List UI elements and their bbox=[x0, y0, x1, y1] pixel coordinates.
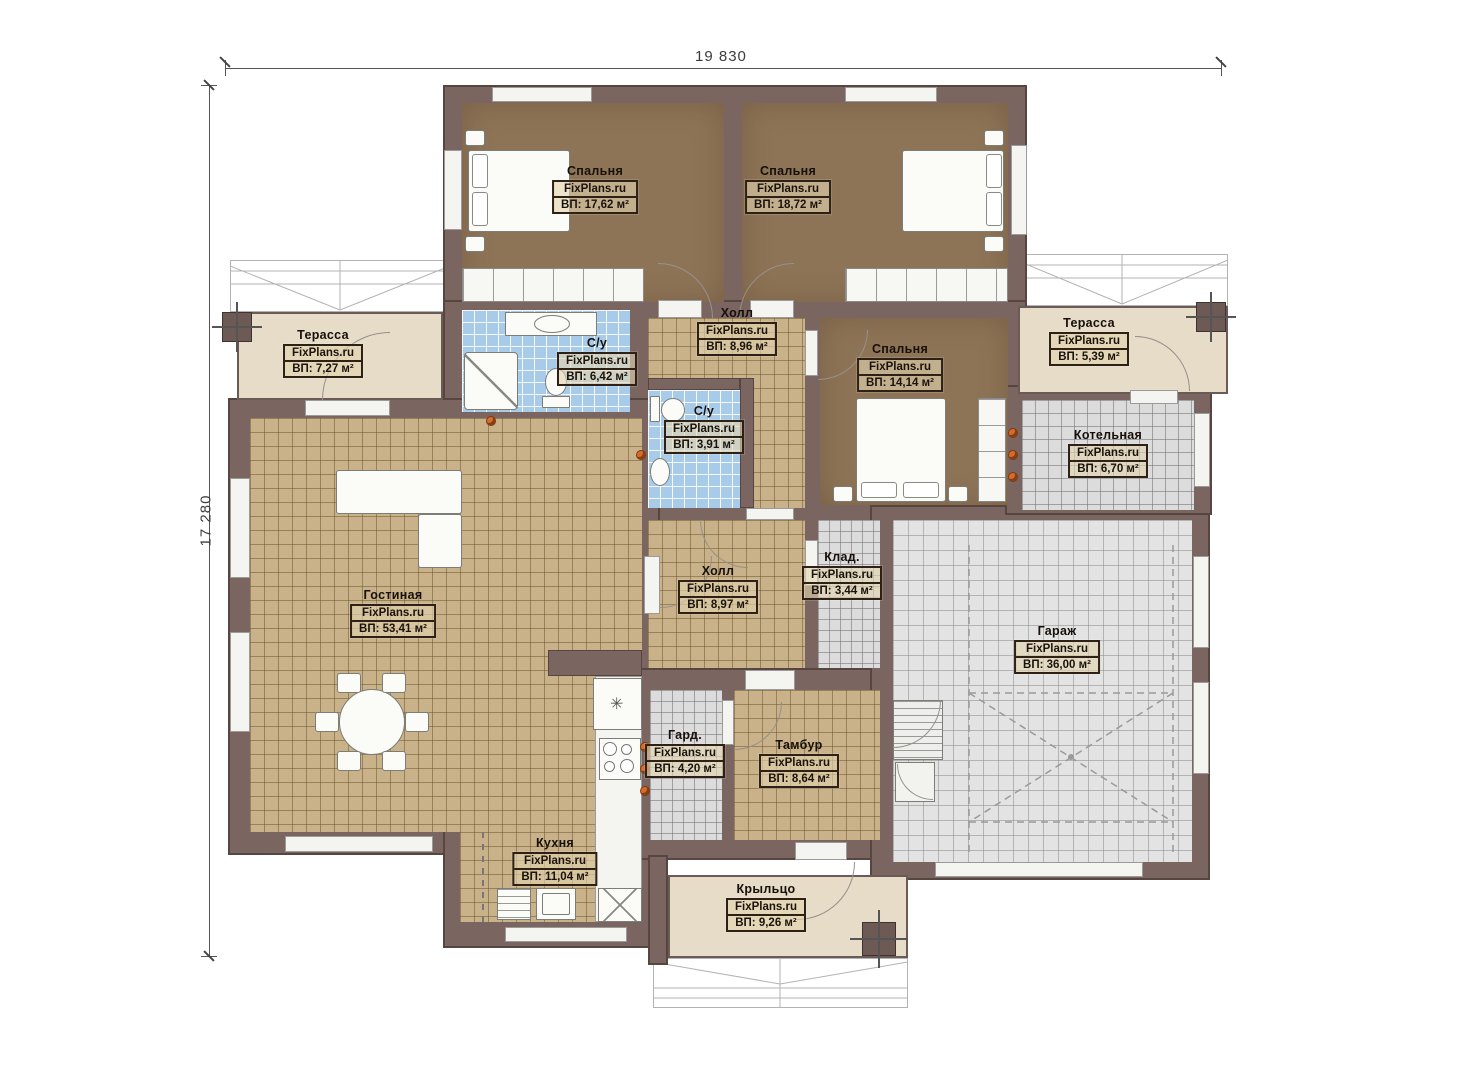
watermark: FixPlans.ru bbox=[747, 182, 829, 198]
pillow bbox=[903, 482, 939, 498]
room-name: Тамбур bbox=[775, 738, 822, 752]
room-label-living-room: Гостиная FixPlans.ru ВП: 53,41 м² bbox=[350, 588, 436, 638]
watermark: FixPlans.ru bbox=[666, 422, 742, 438]
room-name: Гард. bbox=[668, 728, 702, 742]
pantry-star-icon: ✳ bbox=[610, 694, 623, 714]
column-axis bbox=[236, 302, 238, 352]
room-info-box: FixPlans.ru ВП: 11,04 м² bbox=[512, 852, 597, 886]
stove-burner bbox=[603, 742, 617, 756]
window bbox=[1011, 145, 1027, 235]
room-info-box: FixPlans.ru ВП: 3,44 м² bbox=[802, 566, 882, 600]
sofa bbox=[336, 470, 462, 514]
room-name: Холл bbox=[721, 306, 754, 320]
room-label-storage: Клад. FixPlans.ru ВП: 3,44 м² bbox=[802, 550, 882, 600]
room-info-box: FixPlans.ru ВП: 53,41 м² bbox=[350, 604, 436, 638]
room-name: Кухня bbox=[536, 836, 574, 850]
room-name: С/у bbox=[694, 404, 714, 418]
room-label-bedroom-1: Спальня FixPlans.ru ВП: 17,62 м² bbox=[552, 164, 638, 214]
room-area: ВП: 4,20 м² bbox=[647, 762, 723, 776]
room-label-terrace-left: Терасса FixPlans.ru ВП: 7,27 м² bbox=[283, 328, 363, 378]
watermark: FixPlans.ru bbox=[554, 182, 636, 198]
stove-burner bbox=[621, 744, 632, 755]
room-area: ВП: 3,91 м² bbox=[666, 438, 742, 452]
room-info-box: FixPlans.ru ВП: 5,39 м² bbox=[1049, 332, 1129, 366]
room-area: ВП: 9,26 м² bbox=[728, 916, 804, 930]
shower bbox=[464, 352, 518, 410]
watermark: FixPlans.ru bbox=[761, 756, 837, 772]
pillow bbox=[986, 192, 1002, 226]
room-area: ВП: 6,42 м² bbox=[559, 370, 635, 384]
roof-overhang-right-terrace bbox=[1016, 254, 1228, 306]
window bbox=[444, 150, 462, 230]
stove-burner bbox=[620, 759, 634, 773]
wall-bathroom-2-top bbox=[648, 378, 740, 390]
room-name: Крыльцо bbox=[737, 882, 796, 896]
column-axis bbox=[878, 910, 880, 968]
window bbox=[845, 87, 937, 102]
nightstand bbox=[833, 486, 853, 502]
kitchen-zone-dashed-line bbox=[482, 832, 484, 922]
nightstand bbox=[465, 236, 485, 252]
window bbox=[492, 87, 592, 102]
door-opening bbox=[305, 400, 390, 416]
room-label-hall-2: Холл FixPlans.ru ВП: 8,97 м² bbox=[678, 564, 758, 614]
pillow bbox=[986, 154, 1002, 188]
dimension-left-label: 17 280 bbox=[198, 481, 215, 561]
room-label-terrace-right: Терасса FixPlans.ru ВП: 5,39 м² bbox=[1049, 316, 1129, 366]
vent-dot bbox=[1008, 428, 1018, 438]
room-area: ВП: 8,97 м² bbox=[680, 598, 756, 612]
room-name: Гостиная bbox=[364, 588, 423, 602]
garage-parking-marking bbox=[966, 545, 1177, 855]
room-area: ВП: 8,96 м² bbox=[699, 340, 775, 354]
room-area: ВП: 53,41 м² bbox=[352, 622, 434, 636]
door-opening bbox=[644, 556, 660, 614]
room-name: Терасса bbox=[1063, 316, 1115, 330]
room-label-vestibule: Тамбур FixPlans.ru ВП: 8,64 м² bbox=[759, 738, 839, 788]
chair bbox=[337, 751, 361, 771]
room-area: ВП: 5,39 м² bbox=[1051, 350, 1127, 364]
room-name: Клад. bbox=[824, 550, 859, 564]
room-info-box: FixPlans.ru ВП: 6,42 м² bbox=[557, 352, 637, 386]
dimension-line-top bbox=[225, 68, 1222, 69]
door-opening bbox=[805, 330, 818, 376]
vent-dot bbox=[486, 416, 496, 426]
wall-porch-left bbox=[648, 855, 668, 965]
door-opening bbox=[745, 670, 795, 690]
room-info-box: FixPlans.ru ВП: 8,97 м² bbox=[678, 580, 758, 614]
watermark: FixPlans.ru bbox=[804, 568, 880, 584]
window bbox=[285, 836, 433, 852]
dimension-top-label: 19 830 bbox=[695, 48, 747, 65]
wall-kitchen-stub bbox=[548, 650, 642, 676]
stove-burner bbox=[604, 761, 615, 772]
room-info-box: FixPlans.ru ВП: 36,00 м² bbox=[1014, 640, 1100, 674]
watermark: FixPlans.ru bbox=[514, 854, 595, 870]
watermark: FixPlans.ru bbox=[680, 582, 756, 598]
room-name: Спальня bbox=[872, 342, 928, 356]
door-opening bbox=[1130, 390, 1178, 404]
room-name: Котельная bbox=[1074, 428, 1142, 442]
nightstand bbox=[984, 130, 1004, 146]
room-area: ВП: 6,70 м² bbox=[1070, 462, 1146, 476]
window bbox=[505, 927, 627, 942]
toilet-tank bbox=[650, 396, 660, 422]
chair bbox=[382, 673, 406, 693]
pillow bbox=[472, 154, 488, 188]
dining-table bbox=[339, 689, 405, 755]
room-name: С/у bbox=[587, 336, 607, 350]
pillow bbox=[472, 192, 488, 226]
sofa bbox=[418, 514, 462, 568]
nightstand bbox=[465, 130, 485, 146]
sink bbox=[650, 458, 670, 486]
room-label-garage: Гараж FixPlans.ru ВП: 36,00 м² bbox=[1014, 624, 1100, 674]
column-axis bbox=[1210, 292, 1212, 342]
wardrobe-strip bbox=[462, 268, 644, 302]
room-area: ВП: 11,04 м² bbox=[514, 870, 595, 884]
watermark: FixPlans.ru bbox=[1051, 334, 1127, 350]
vent-dot bbox=[640, 786, 650, 796]
room-name: Спальня bbox=[760, 164, 816, 178]
chair bbox=[337, 673, 361, 693]
floor-plan-canvas: 19 830 17 280 bbox=[0, 0, 1473, 1080]
vent-dot bbox=[636, 450, 646, 460]
room-info-box: FixPlans.ru ВП: 7,27 м² bbox=[283, 344, 363, 378]
watermark: FixPlans.ru bbox=[285, 346, 361, 362]
room-area: ВП: 3,44 м² bbox=[804, 584, 880, 598]
room-name: Гараж bbox=[1038, 624, 1077, 638]
watermark: FixPlans.ru bbox=[559, 354, 635, 370]
watermark: FixPlans.ru bbox=[728, 900, 804, 916]
roof-overhang-porch bbox=[653, 958, 908, 1008]
room-info-box: FixPlans.ru ВП: 4,20 м² bbox=[645, 744, 725, 778]
room-label-bathroom-2: С/у FixPlans.ru ВП: 3,91 м² bbox=[664, 404, 744, 454]
room-label-hall-1: Холл FixPlans.ru ВП: 8,96 м² bbox=[697, 306, 777, 356]
room-label-boiler-room: Котельная FixPlans.ru ВП: 6,70 м² bbox=[1068, 428, 1148, 478]
window bbox=[230, 478, 250, 578]
window bbox=[1193, 556, 1209, 648]
sink bbox=[534, 315, 570, 333]
room-label-kitchen: Кухня FixPlans.ru ВП: 11,04 м² bbox=[512, 836, 597, 886]
corner-cabinet bbox=[598, 888, 642, 922]
room-label-porch: Крыльцо FixPlans.ru ВП: 9,26 м² bbox=[726, 882, 806, 932]
room-area: ВП: 36,00 м² bbox=[1016, 658, 1098, 672]
room-info-box: FixPlans.ru ВП: 8,64 м² bbox=[759, 754, 839, 788]
room-area: ВП: 8,64 м² bbox=[761, 772, 837, 786]
wardrobe-strip bbox=[845, 268, 1008, 302]
vent-dot bbox=[1008, 450, 1018, 460]
room-label-wardrobe: Гард. FixPlans.ru ВП: 4,20 м² bbox=[645, 728, 725, 778]
watermark: FixPlans.ru bbox=[1070, 446, 1146, 462]
room-area: ВП: 7,27 м² bbox=[285, 362, 361, 376]
door-opening bbox=[746, 508, 794, 520]
room-label-bathroom-1: С/у FixPlans.ru ВП: 6,42 м² bbox=[557, 336, 637, 386]
room-label-bedroom-3: Спальня FixPlans.ru ВП: 14,14 м² bbox=[857, 342, 943, 392]
kitchen-sink-basin bbox=[542, 893, 570, 915]
room-name: Холл bbox=[702, 564, 735, 578]
room-area: ВП: 17,62 м² bbox=[554, 198, 636, 212]
window bbox=[1194, 413, 1210, 487]
toilet-tank bbox=[542, 396, 570, 408]
room-info-box: FixPlans.ru ВП: 6,70 м² bbox=[1068, 444, 1148, 478]
nightstand bbox=[984, 236, 1004, 252]
chair bbox=[315, 712, 339, 732]
window bbox=[230, 632, 250, 732]
dishwasher bbox=[497, 888, 531, 920]
roof-overhang-left-terrace bbox=[230, 260, 450, 312]
room-area: ВП: 14,14 м² bbox=[859, 376, 941, 390]
room-info-box: FixPlans.ru ВП: 9,26 м² bbox=[726, 898, 806, 932]
room-info-box: FixPlans.ru ВП: 17,62 м² bbox=[552, 180, 638, 214]
room-name: Терасса bbox=[297, 328, 349, 342]
chair bbox=[405, 712, 429, 732]
chair bbox=[382, 751, 406, 771]
room-info-box: FixPlans.ru ВП: 3,91 м² bbox=[664, 420, 744, 454]
watermark: FixPlans.ru bbox=[859, 360, 941, 376]
nightstand bbox=[948, 486, 968, 502]
room-info-box: FixPlans.ru ВП: 18,72 м² bbox=[745, 180, 831, 214]
watermark: FixPlans.ru bbox=[352, 606, 434, 622]
vent-dot bbox=[1008, 472, 1018, 482]
pillow bbox=[861, 482, 897, 498]
door-opening bbox=[795, 842, 847, 860]
room-name: Спальня bbox=[567, 164, 623, 178]
room-info-box: FixPlans.ru ВП: 14,14 м² bbox=[857, 358, 943, 392]
watermark: FixPlans.ru bbox=[1016, 642, 1098, 658]
watermark: FixPlans.ru bbox=[699, 324, 775, 340]
room-area: ВП: 18,72 м² bbox=[747, 198, 829, 212]
watermark: FixPlans.ru bbox=[647, 746, 723, 762]
garage-door-opening bbox=[935, 862, 1143, 877]
wardrobe-strip bbox=[978, 398, 1006, 502]
window bbox=[1193, 682, 1209, 774]
room-label-bedroom-2: Спальня FixPlans.ru ВП: 18,72 м² bbox=[745, 164, 831, 214]
room-info-box: FixPlans.ru ВП: 8,96 м² bbox=[697, 322, 777, 356]
